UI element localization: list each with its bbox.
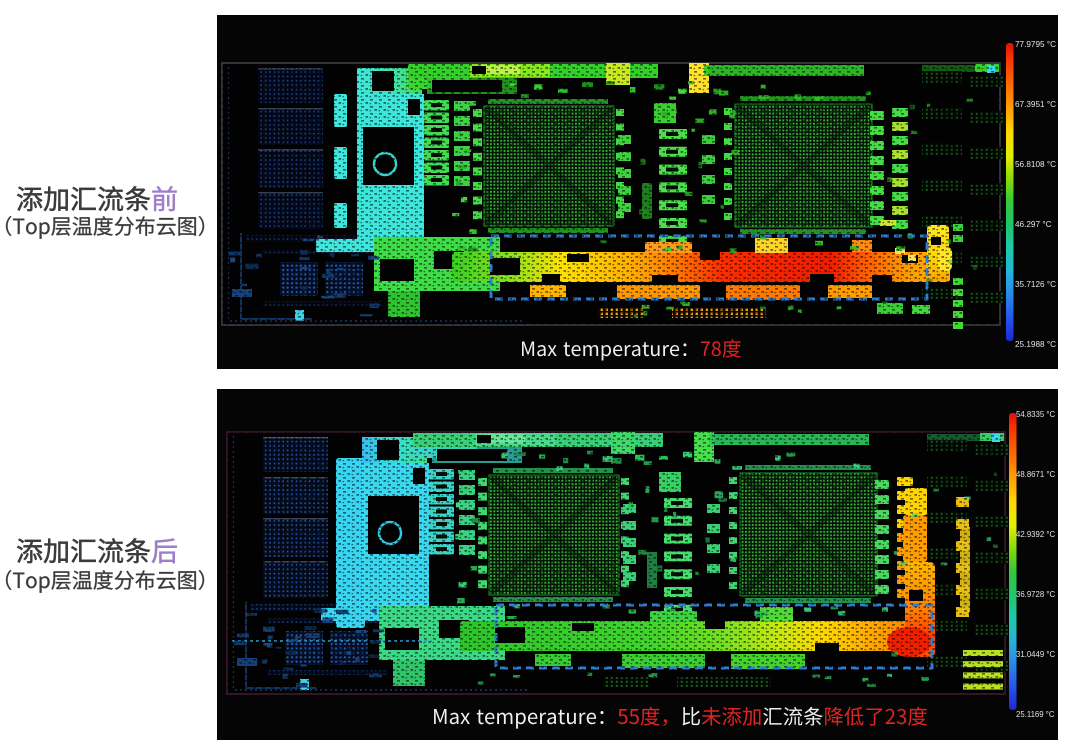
- svg-text:56.8108 °C: 56.8108 °C: [1015, 160, 1056, 169]
- svg-text:25.1988 °C: 25.1988 °C: [1015, 340, 1056, 349]
- svg-text:46.297 °C: 46.297 °C: [1015, 220, 1052, 229]
- svg-text:42.9392 °C: 42.9392 °C: [1016, 530, 1055, 539]
- svg-text:67.3951 °C: 67.3951 °C: [1015, 100, 1056, 109]
- svg-text:77.9795 °C: 77.9795 °C: [1015, 40, 1056, 49]
- svg-text:48.8671 °C: 48.8671 °C: [1016, 470, 1055, 479]
- svg-text:36.9728 °C: 36.9728 °C: [1016, 590, 1055, 599]
- svg-text:31.0449 °C: 31.0449 °C: [1016, 650, 1055, 659]
- svg-text:25.1169 °C: 25.1169 °C: [1016, 710, 1055, 719]
- svg-text:54.8335 °C: 54.8335 °C: [1016, 410, 1055, 419]
- svg-text:35.7126 °C: 35.7126 °C: [1015, 280, 1056, 289]
